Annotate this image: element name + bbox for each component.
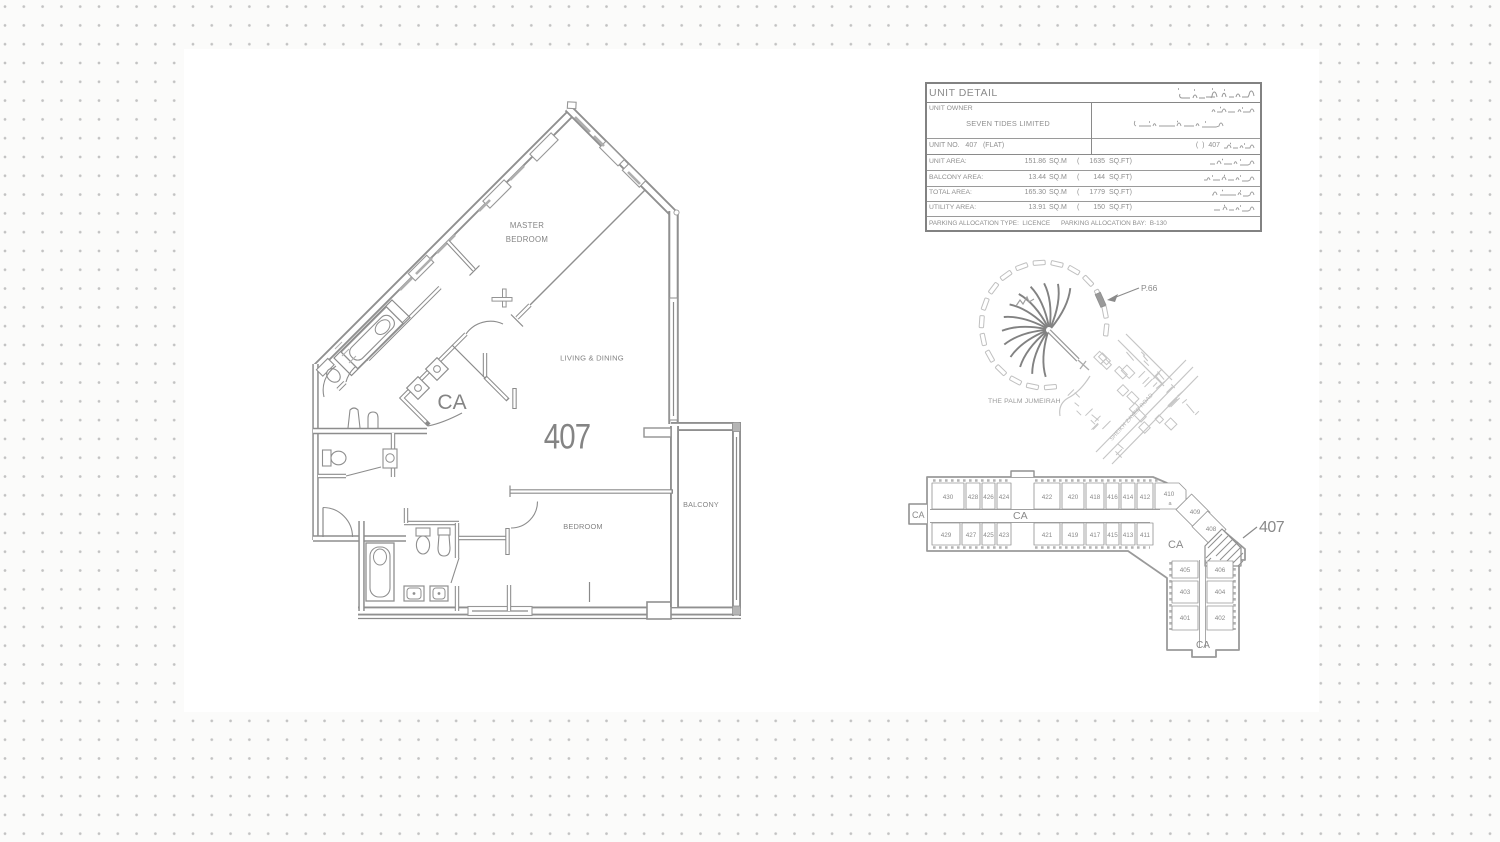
svg-text:425: 425	[983, 532, 994, 539]
svg-text:406: 406	[1215, 567, 1226, 574]
svg-text:421: 421	[1042, 532, 1053, 539]
svg-text:407: 407	[1259, 519, 1285, 536]
svg-text:402: 402	[1215, 615, 1226, 622]
svg-text:428: 428	[968, 494, 979, 501]
svg-text:415: 415	[1107, 532, 1118, 539]
svg-text:408: 408	[1206, 526, 1217, 533]
svg-text:430: 430	[943, 494, 954, 501]
svg-text:417: 417	[1090, 532, 1101, 539]
svg-text:MASTER: MASTER	[510, 221, 544, 230]
svg-text:423: 423	[999, 532, 1010, 539]
svg-text:427: 427	[966, 532, 977, 539]
svg-text:420: 420	[1068, 494, 1079, 501]
svg-text:414: 414	[1123, 494, 1134, 501]
svg-text:426: 426	[983, 494, 994, 501]
svg-text:404: 404	[1215, 589, 1226, 596]
svg-text:P.66: P.66	[1141, 283, 1158, 293]
svg-text:405: 405	[1180, 567, 1191, 574]
svg-text:416: 416	[1107, 494, 1118, 501]
svg-text:BEDROOM: BEDROOM	[506, 235, 548, 244]
svg-text:410: 410	[1164, 491, 1175, 498]
svg-text:CA: CA	[1196, 640, 1210, 651]
svg-text:CA: CA	[1168, 539, 1184, 551]
svg-text:SHEIKH ZAYED ROAD: SHEIKH ZAYED ROAD	[1109, 392, 1155, 442]
svg-text:418: 418	[1090, 494, 1101, 501]
svg-text:412: 412	[1140, 494, 1151, 501]
svg-text:CA: CA	[1013, 510, 1028, 522]
svg-text:CA: CA	[912, 510, 925, 520]
svg-text:419: 419	[1068, 532, 1079, 539]
svg-text:413: 413	[1123, 532, 1134, 539]
svg-text:403: 403	[1180, 589, 1191, 596]
svg-text:411: 411	[1140, 532, 1151, 539]
svg-text:407: 407	[544, 417, 591, 456]
svg-text:409: 409	[1190, 509, 1201, 516]
svg-text:429: 429	[941, 532, 952, 539]
svg-text:LIVING & DINING: LIVING & DINING	[560, 354, 624, 363]
svg-text:THE PALM JUMEIRAH: THE PALM JUMEIRAH	[988, 398, 1061, 405]
svg-text:BEDROOM: BEDROOM	[563, 522, 603, 531]
svg-text:424: 424	[999, 494, 1010, 501]
svg-text:401: 401	[1180, 615, 1191, 622]
svg-text:BALCONY: BALCONY	[683, 500, 719, 509]
svg-text:CA: CA	[437, 391, 466, 414]
svg-text:422: 422	[1042, 494, 1053, 501]
